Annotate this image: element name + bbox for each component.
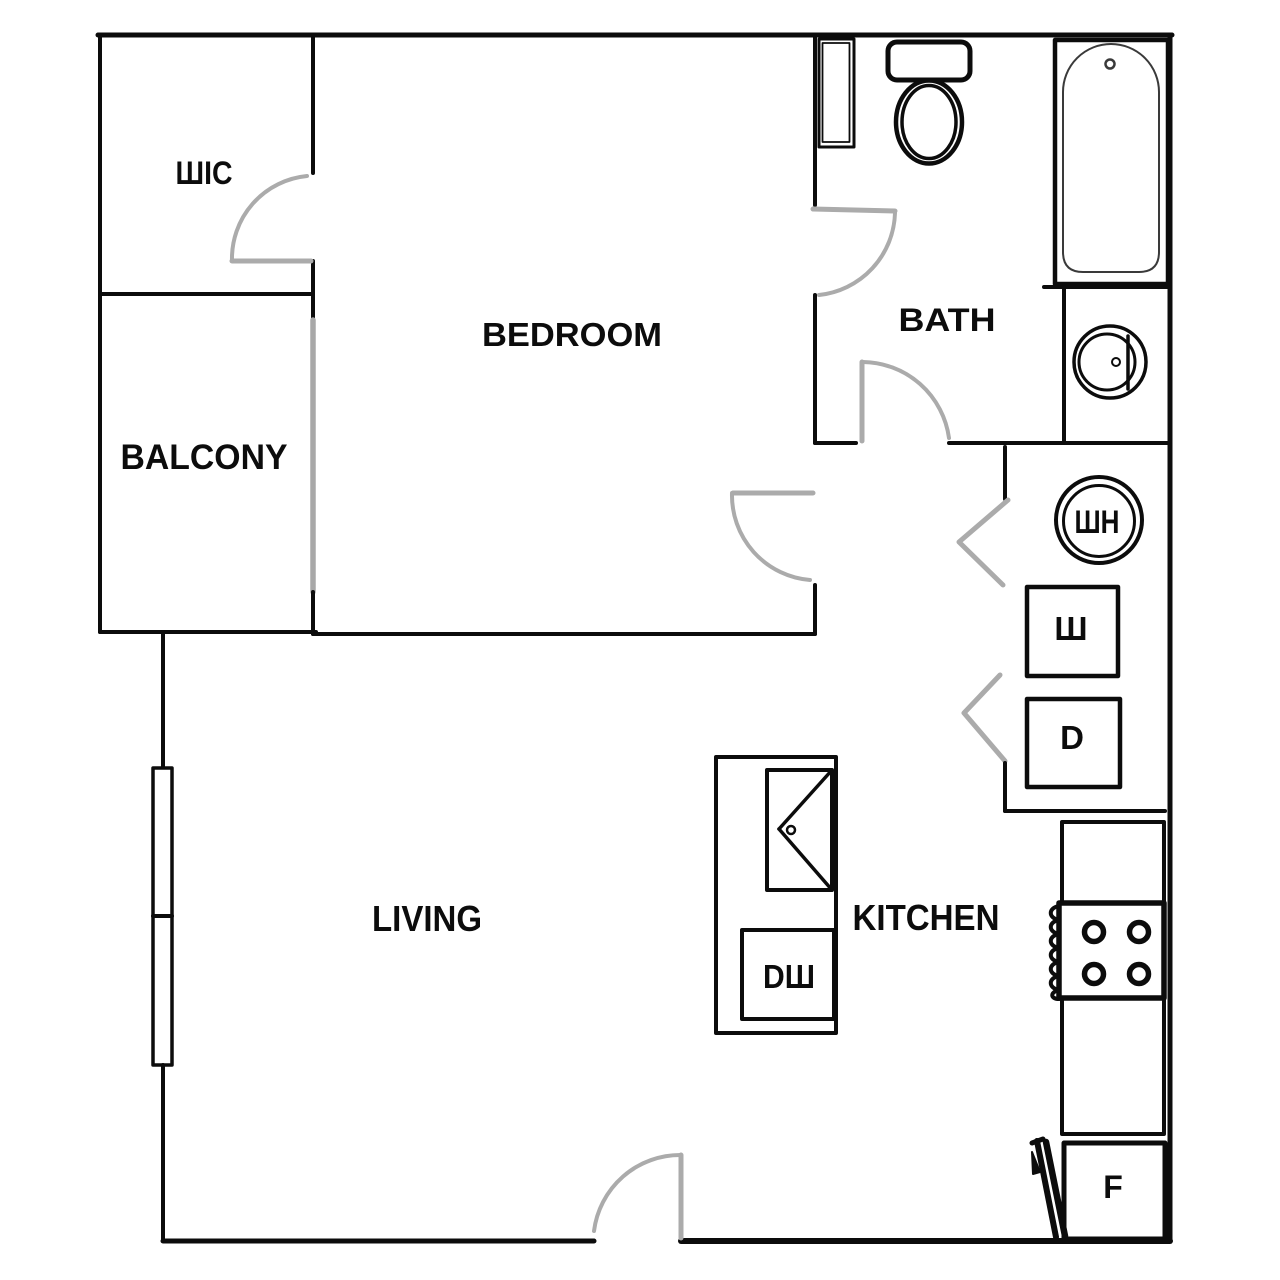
svg-text:D: D xyxy=(1060,719,1084,756)
svg-text:LIVING: LIVING xyxy=(372,898,482,939)
svg-text:BALCONY: BALCONY xyxy=(121,438,288,477)
svg-text:F: F xyxy=(1103,1169,1123,1205)
svg-text:DШ: DШ xyxy=(763,958,815,995)
svg-text:BATH: BATH xyxy=(899,302,996,338)
svg-text:Ш: Ш xyxy=(1054,610,1087,647)
svg-text:KITCHEN: KITCHEN xyxy=(853,897,1000,938)
svg-text:ШH: ШH xyxy=(1075,504,1120,540)
svg-text:BEDROOM: BEDROOM xyxy=(482,316,662,353)
svg-text:ШIC: ШIC xyxy=(176,155,233,191)
